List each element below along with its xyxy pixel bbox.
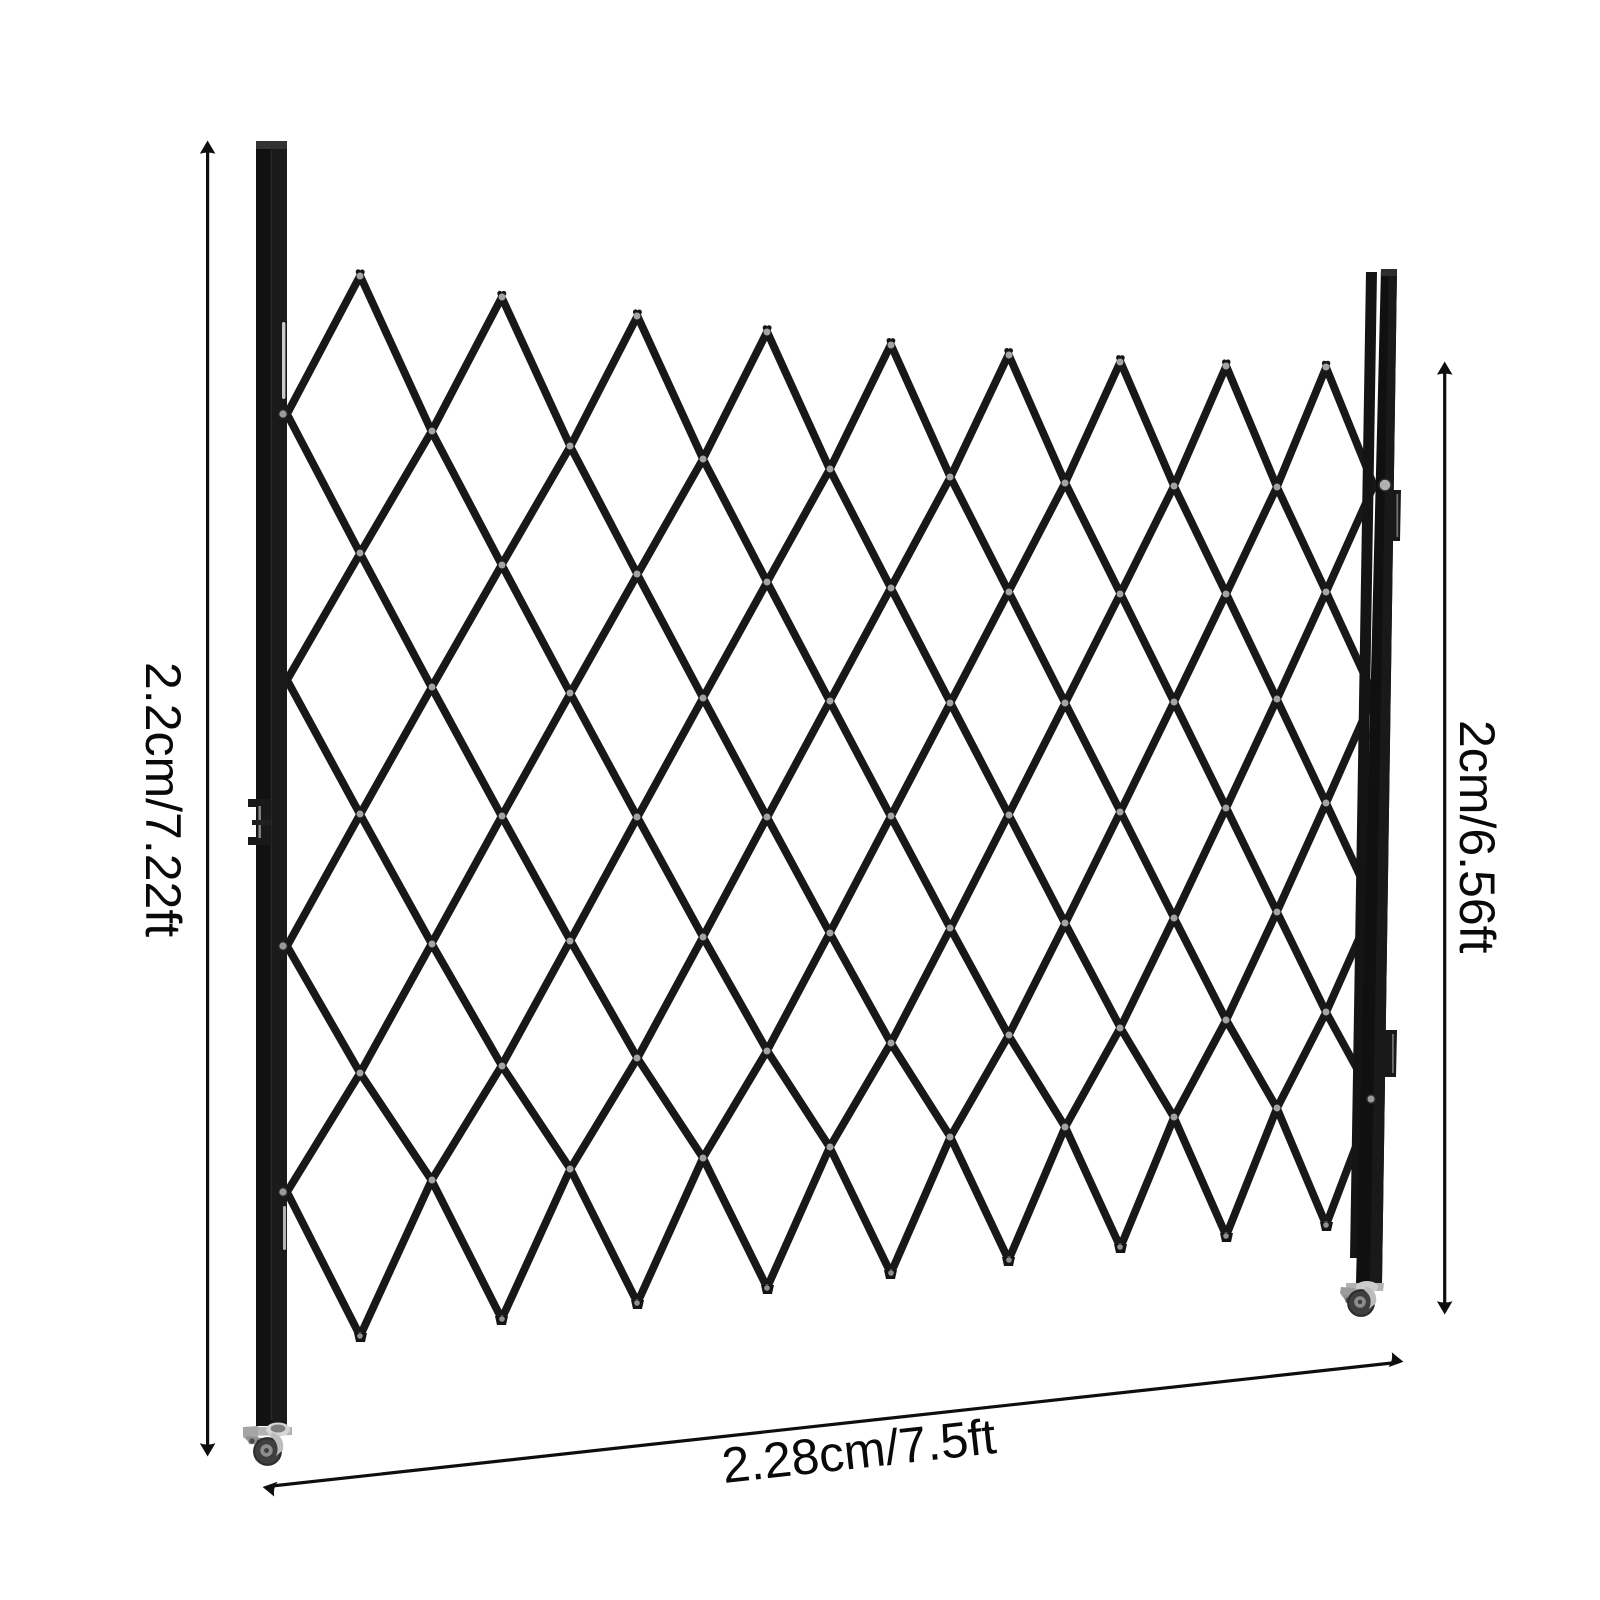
svg-text:2.2cm/7.22ft: 2.2cm/7.22ft [135, 662, 191, 937]
svg-text:2cm/6.56ft: 2cm/6.56ft [1449, 720, 1505, 954]
